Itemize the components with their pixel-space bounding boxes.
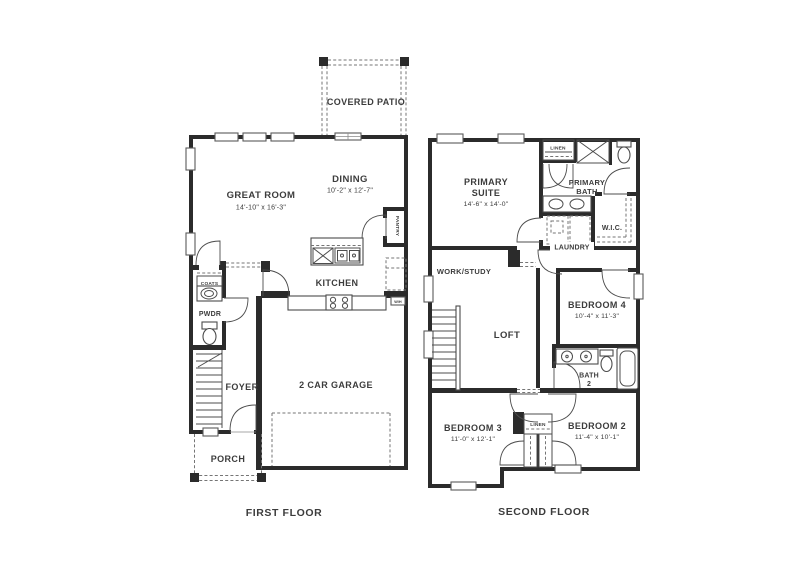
wall-segment	[556, 268, 602, 272]
toilet-bowl	[618, 147, 630, 163]
stairs-second-floor	[432, 306, 460, 390]
powder-label: PWDR	[199, 311, 221, 318]
foyer-label: FOYER	[225, 382, 258, 392]
wall-segment	[508, 250, 520, 267]
bath2-label-1: BATH	[579, 373, 599, 380]
wic-door-arc	[604, 168, 630, 194]
wall-segment	[256, 466, 408, 470]
covered-patio	[319, 57, 409, 135]
wall-segment	[193, 345, 226, 350]
patio-slider-door	[335, 133, 361, 140]
pantry-label: PANTRY	[394, 216, 400, 237]
primary-vanity	[543, 196, 591, 212]
wall-segment	[539, 138, 543, 218]
laundry-label: LAUNDRY	[554, 245, 589, 252]
bedroom3-label: BEDROOM 3	[444, 423, 502, 433]
wall-segment	[189, 135, 193, 434]
dryer	[570, 216, 590, 244]
wall-segment	[193, 265, 199, 270]
wall-segment	[220, 261, 226, 270]
window	[271, 133, 294, 141]
dining-label: DINING	[332, 174, 368, 185]
primary-suite-door-arc	[517, 218, 541, 242]
pantry-door-arc	[362, 215, 386, 239]
water-heater-label: W/H	[394, 300, 402, 304]
front-door-arc	[230, 405, 256, 431]
toilet-tank	[600, 350, 613, 356]
kitchen-fixtures: W/H	[288, 238, 406, 310]
wall-segment	[428, 246, 517, 250]
bedroom2-dims: 11'-4" x 10'-1"	[575, 434, 620, 441]
toilet-tank	[617, 141, 631, 147]
window	[424, 276, 433, 302]
patio-post	[400, 57, 409, 66]
bedroom2-label: BEDROOM 2	[568, 421, 626, 431]
porch-post	[190, 473, 199, 482]
primary-suite-dims: 14'-6" x 14'-0"	[464, 201, 509, 208]
porch-label: PORCH	[211, 454, 246, 464]
window	[555, 465, 581, 473]
window	[215, 133, 238, 141]
wall-segment	[428, 138, 432, 488]
window	[498, 134, 524, 143]
toilet-bowl	[601, 357, 612, 372]
refrigerator	[386, 258, 406, 290]
linen-upper-label: LINEN	[550, 146, 566, 152]
window	[437, 134, 463, 143]
wall-segment	[539, 240, 543, 250]
primary-bath-label-2: BATH	[576, 187, 597, 196]
dining-dims: 10'-2" x 12'-7"	[327, 188, 373, 195]
wall-segment	[222, 270, 226, 298]
bath2-door-arc	[554, 362, 580, 388]
wall-segment	[222, 321, 226, 348]
wall-segment	[536, 268, 540, 388]
laundry-room: LAUNDRY	[547, 216, 594, 252]
bedroom3-dims: 11'-0" x 12'-1"	[451, 436, 496, 443]
washer	[547, 216, 568, 244]
window	[451, 482, 476, 490]
washer-drum	[551, 221, 563, 233]
wall-segment	[595, 246, 640, 250]
garage-label: 2 CAR GARAGE	[299, 380, 373, 390]
work-study-label: WORK/STUDY	[437, 267, 491, 276]
window	[424, 331, 433, 358]
bedroom4-door-arc	[602, 270, 630, 298]
wic-closet	[597, 198, 631, 242]
wall-segment	[543, 212, 593, 216]
wall-segment	[383, 243, 408, 247]
bedroom4-label: BEDROOM 4	[568, 300, 626, 310]
second-floor-title: SECOND FLOOR	[498, 506, 590, 518]
window	[186, 233, 195, 255]
wall-segment	[552, 344, 640, 348]
linen-lower-label: LINEN	[530, 422, 546, 428]
bedroom4-dims: 10'-4" x 11'-3"	[575, 313, 620, 320]
wall-segment	[556, 268, 560, 348]
loft-label: LOFT	[494, 330, 520, 341]
closet2-door-arc	[552, 441, 576, 465]
coats-closet: COATS	[197, 273, 222, 287]
closet3-door-arc	[500, 441, 524, 465]
stove	[326, 295, 352, 310]
bath-entry-door-arc	[543, 164, 567, 188]
garage-door	[272, 413, 390, 466]
wall-segment	[636, 138, 640, 471]
floorplan-drawing: COATS	[0, 0, 800, 567]
bath2-fixtures	[556, 348, 638, 389]
window	[186, 148, 195, 170]
great-room-dims: 14'-10" x 16'-3"	[236, 205, 286, 212]
wall-segment	[500, 467, 504, 488]
stair-direction-line	[198, 353, 222, 367]
first-floor-plan: COATS	[186, 57, 409, 519]
second-floor-plan: LINEN LAUNDRY	[424, 134, 643, 518]
kitchen-label: KITCHEN	[316, 278, 359, 288]
linen-closet-upper: LINEN	[543, 140, 574, 160]
primary-bath-label-1: PRIMARY	[569, 178, 605, 187]
bath2-label-2: 2	[587, 381, 591, 388]
primary-shower	[577, 140, 609, 163]
stair-rail	[456, 306, 460, 390]
toilet-bowl	[203, 329, 216, 345]
window	[243, 133, 266, 141]
hall-door-arc	[196, 241, 220, 265]
patio-post	[319, 57, 328, 66]
first-floor-title: FIRST FLOOR	[246, 507, 323, 519]
wall-segment	[383, 207, 408, 211]
wall-segment	[428, 388, 517, 393]
floorplan-canvas: COATS	[0, 0, 800, 567]
wic-label: W.I.C.	[602, 225, 622, 232]
wall-segment	[513, 412, 524, 434]
stairs-first-floor	[196, 350, 222, 428]
window	[203, 428, 218, 436]
covered-patio-label: COVERED PATIO	[327, 97, 405, 107]
primary-suite-label-1: PRIMARY	[464, 177, 508, 187]
primary-suite-label-2: SUITE	[472, 188, 501, 198]
window	[634, 274, 643, 299]
powder-door-arc	[224, 298, 248, 322]
wall-segment	[261, 291, 290, 298]
great-room-label: GREAT ROOM	[227, 190, 296, 201]
wall-segment	[591, 196, 595, 250]
primary-toilet	[617, 141, 631, 163]
porch-post	[257, 473, 266, 482]
